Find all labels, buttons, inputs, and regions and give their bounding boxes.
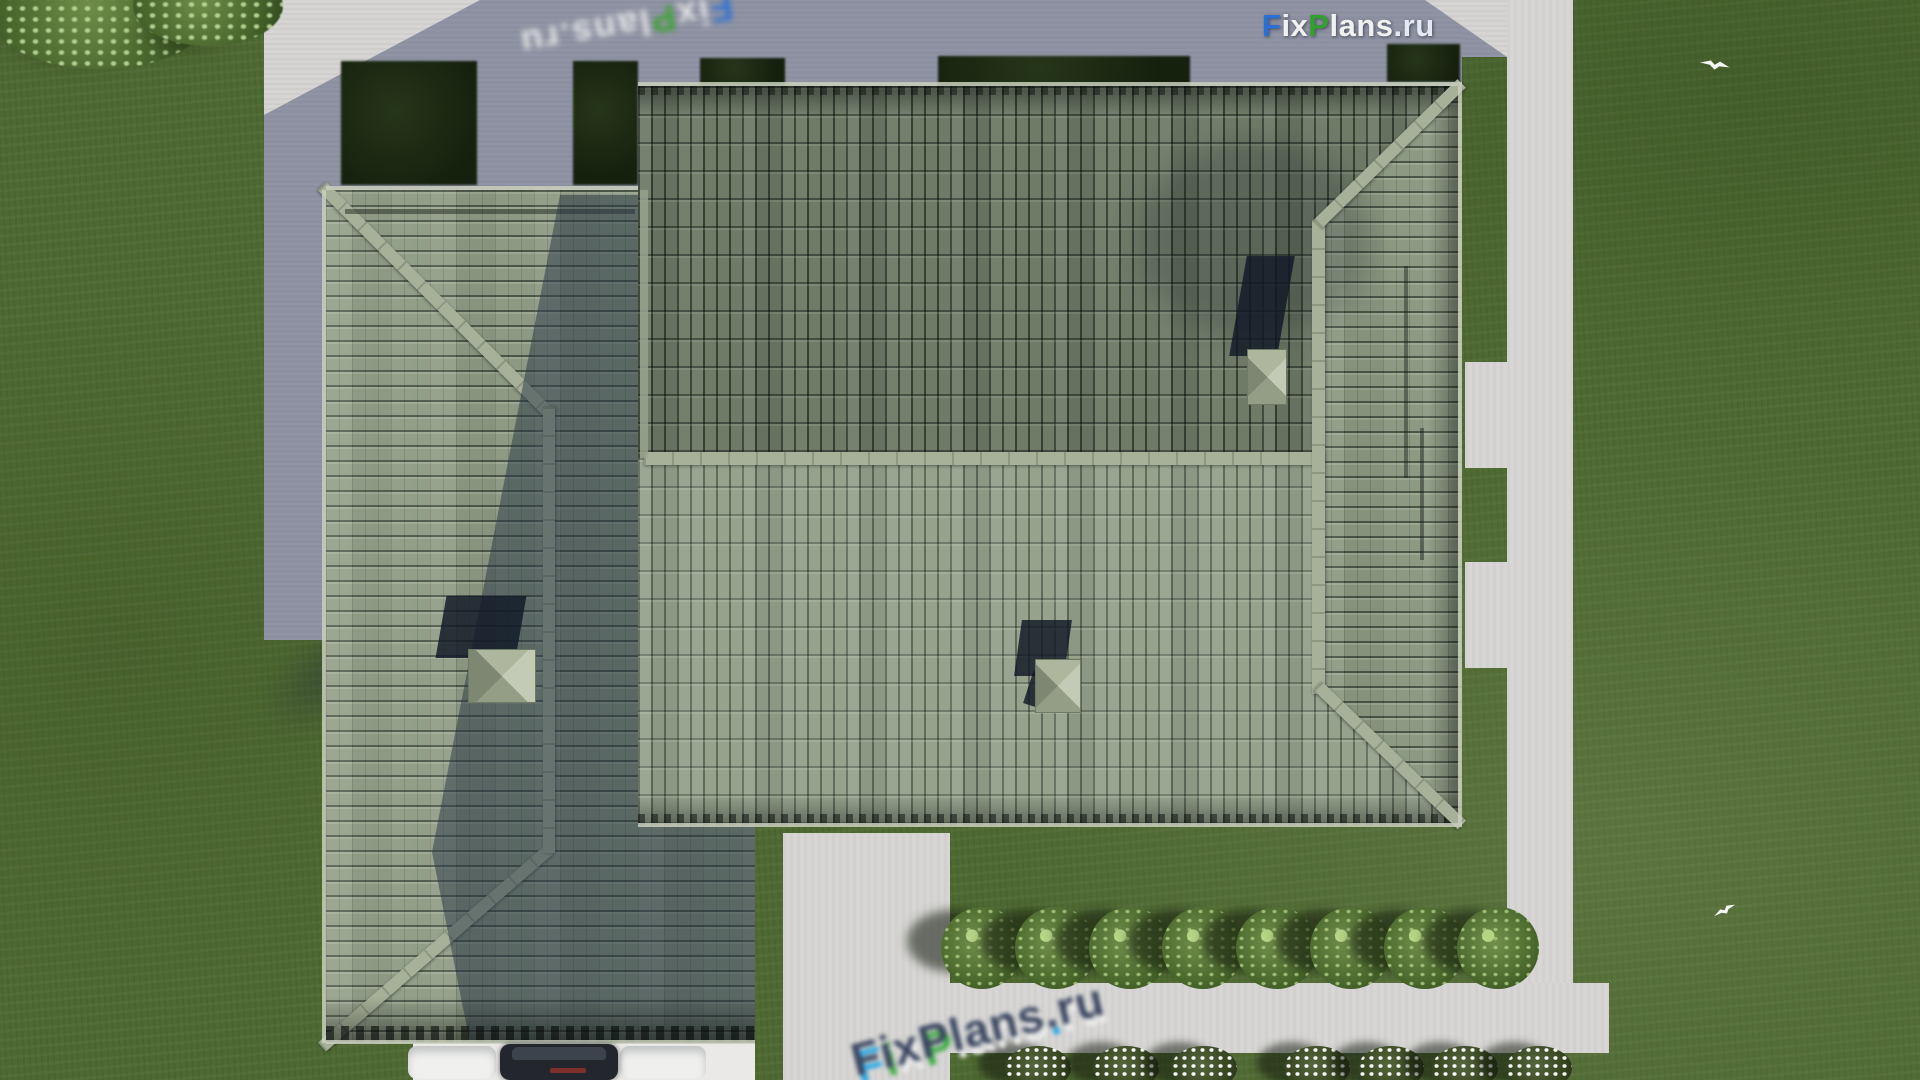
concrete-pad-left-strip [264,86,326,640]
white-car-left [408,1046,496,1079]
east-slope-pipe-1 [1404,266,1408,478]
wing-chimney-cap [469,650,535,702]
hedge-strip [573,61,638,185]
main-eave-shadow-top [638,86,1462,114]
dark-car [500,1044,618,1080]
hedge-strip [341,61,477,185]
wing-eave-shadow-bottom [326,996,755,1042]
hedge-strip [700,58,785,85]
main-eave-shadow-right [1428,86,1458,825]
valley-junction-line [640,190,648,458]
chimney-north-cap [1248,350,1286,404]
site-logo: FixPlans.ru [1262,8,1435,44]
logo-f: F [1262,8,1281,43]
hedge-strip [1387,44,1460,82]
main-fascia-north [638,82,1462,86]
aerial-render-scene: FixPlans.ru FixPlans.ru FixPlans.ru FixP… [0,0,1920,1080]
path-connector-upper [1465,362,1507,468]
main-ridge-cap [644,452,1324,465]
main-fascia-east [1458,86,1462,825]
garden-path-right-vertical [1507,0,1573,1053]
main-fascia-south [638,823,1462,827]
wing-chimney-shadow [436,596,527,658]
east-slope-pipe-2 [1420,428,1424,560]
round-bush [1457,907,1539,989]
main-eave-shadow-bottom [638,794,1462,825]
car-tail-lights [550,1068,586,1073]
east-ridge-cap [1312,220,1325,694]
logo-ix: ix [1281,8,1308,43]
car-rear-window [512,1047,606,1060]
wing-fascia-north [326,186,642,190]
logo-p: P [1308,8,1329,43]
wing-fascia-west [322,190,326,1043]
path-connector-lower [1465,562,1507,668]
chimney-south-cap [1036,660,1080,712]
logo-lans: lans [1329,8,1393,43]
white-car-right [620,1046,706,1079]
logo-dotru: .ru [1394,8,1435,43]
